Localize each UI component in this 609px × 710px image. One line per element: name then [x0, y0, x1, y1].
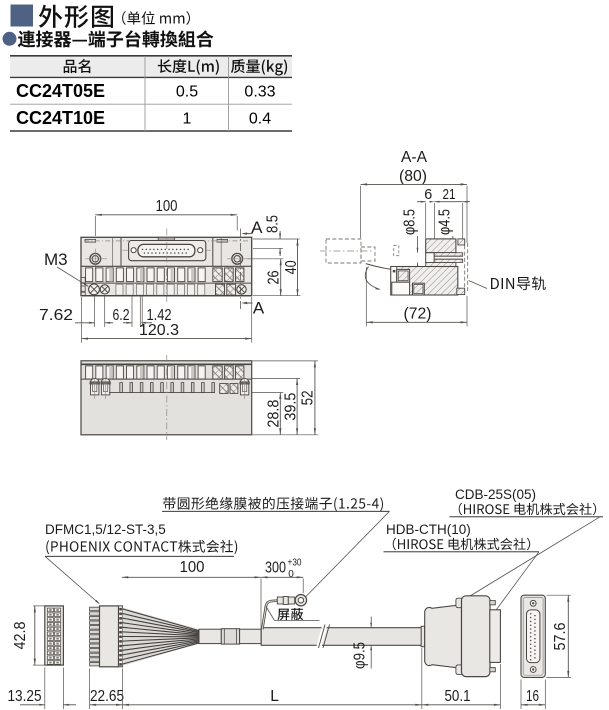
svg-text:A-A: A-A: [401, 149, 427, 166]
svg-text:39.5: 39.5: [282, 393, 299, 421]
svg-text:100: 100: [180, 559, 205, 576]
svg-text:26: 26: [266, 270, 283, 284]
svg-text:13.25: 13.25: [8, 688, 42, 705]
svg-text:+30: +30: [288, 558, 302, 569]
svg-text:42.8: 42.8: [12, 622, 29, 650]
svg-text:(80): (80): [399, 168, 427, 185]
svg-text:8.5: 8.5: [265, 215, 282, 233]
svg-text:0.4: 0.4: [249, 111, 271, 128]
svg-text:L: L: [270, 688, 279, 705]
svg-text:0.33: 0.33: [244, 84, 275, 101]
svg-text:120.3: 120.3: [139, 322, 179, 339]
svg-text:0: 0: [288, 569, 294, 580]
svg-text:φ4.5: φ4.5: [437, 209, 454, 235]
svg-text:22.65: 22.65: [90, 688, 124, 705]
svg-text:HDB-CTH(10): HDB-CTH(10): [386, 522, 471, 537]
svg-text:A: A: [253, 299, 265, 318]
svg-text:57.6: 57.6: [552, 623, 569, 651]
svg-text:16: 16: [526, 688, 539, 705]
svg-text:300: 300: [265, 560, 286, 577]
svg-text:50.1: 50.1: [445, 688, 471, 705]
svg-text:φ9.5: φ9.5: [352, 642, 369, 669]
svg-text:φ8.5: φ8.5: [402, 209, 419, 235]
svg-text:0.5: 0.5: [176, 84, 198, 101]
svg-text:DFMC1,5/12-ST-3,5: DFMC1,5/12-ST-3,5: [45, 522, 166, 537]
svg-text:6: 6: [424, 186, 432, 203]
svg-text:6.2: 6.2: [113, 307, 130, 324]
svg-text:A: A: [251, 218, 263, 237]
svg-text:M3: M3: [44, 250, 68, 269]
svg-text:1: 1: [183, 111, 192, 128]
svg-text:21: 21: [443, 186, 456, 203]
svg-text:40: 40: [283, 260, 300, 274]
svg-text:100: 100: [156, 198, 178, 215]
svg-text:28.8: 28.8: [266, 400, 283, 428]
svg-text:7.62: 7.62: [39, 307, 73, 324]
svg-text:(72): (72): [404, 306, 432, 323]
svg-text:CC24T10E: CC24T10E: [16, 108, 105, 128]
svg-text:CDB-25S(05): CDB-25S(05): [455, 487, 536, 502]
svg-text:CC24T05E: CC24T05E: [16, 81, 105, 101]
svg-text:52: 52: [300, 390, 317, 405]
